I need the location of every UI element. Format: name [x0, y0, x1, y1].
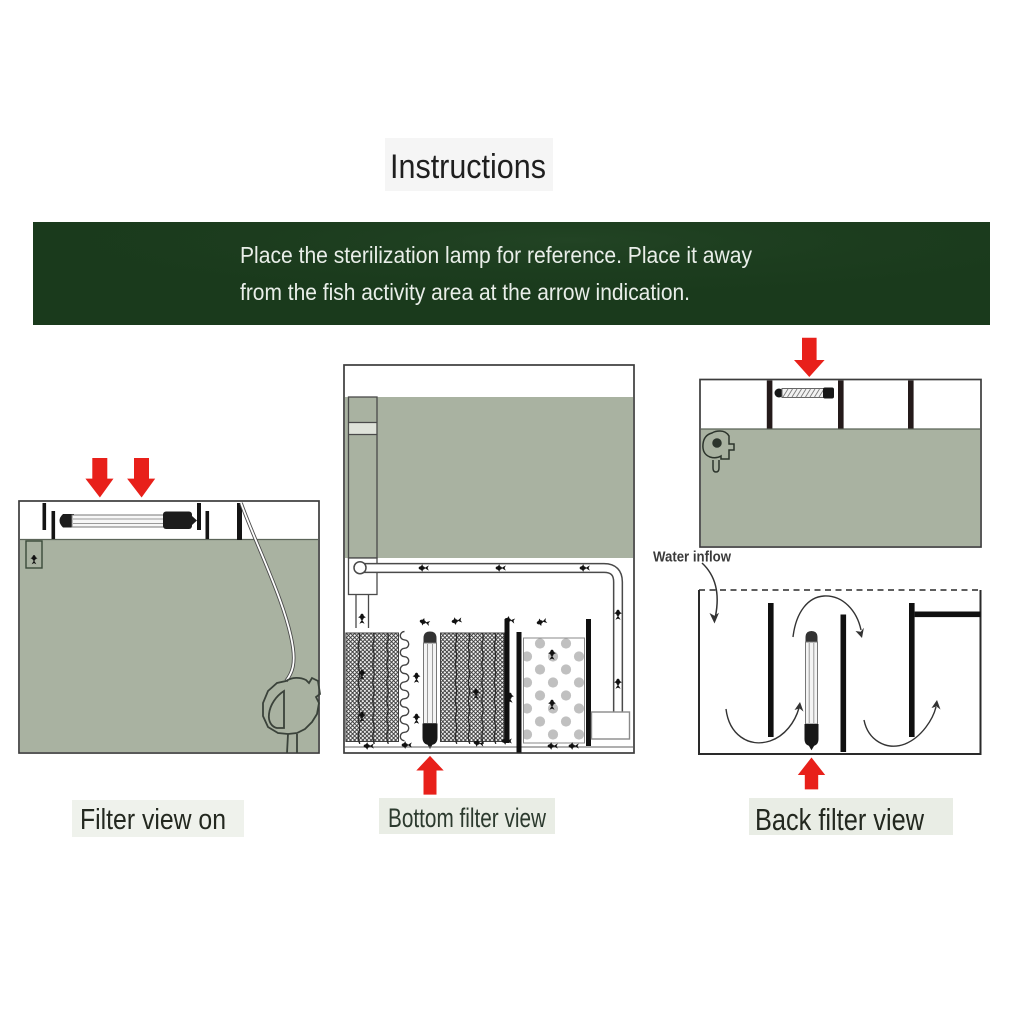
- svg-text:from the fish activity area at: from the fish activity area at the arrow…: [240, 279, 690, 305]
- svg-text:Place the sterilization lamp f: Place the sterilization lamp for referen…: [240, 242, 752, 268]
- svg-text:Water inflow: Water inflow: [653, 550, 732, 566]
- svg-text:Instructions: Instructions: [390, 148, 546, 186]
- svg-text:Back filter view: Back filter view: [755, 802, 924, 837]
- svg-text:Bottom filter view: Bottom filter view: [388, 803, 546, 833]
- svg-text:Filter view on: Filter view on: [80, 804, 226, 836]
